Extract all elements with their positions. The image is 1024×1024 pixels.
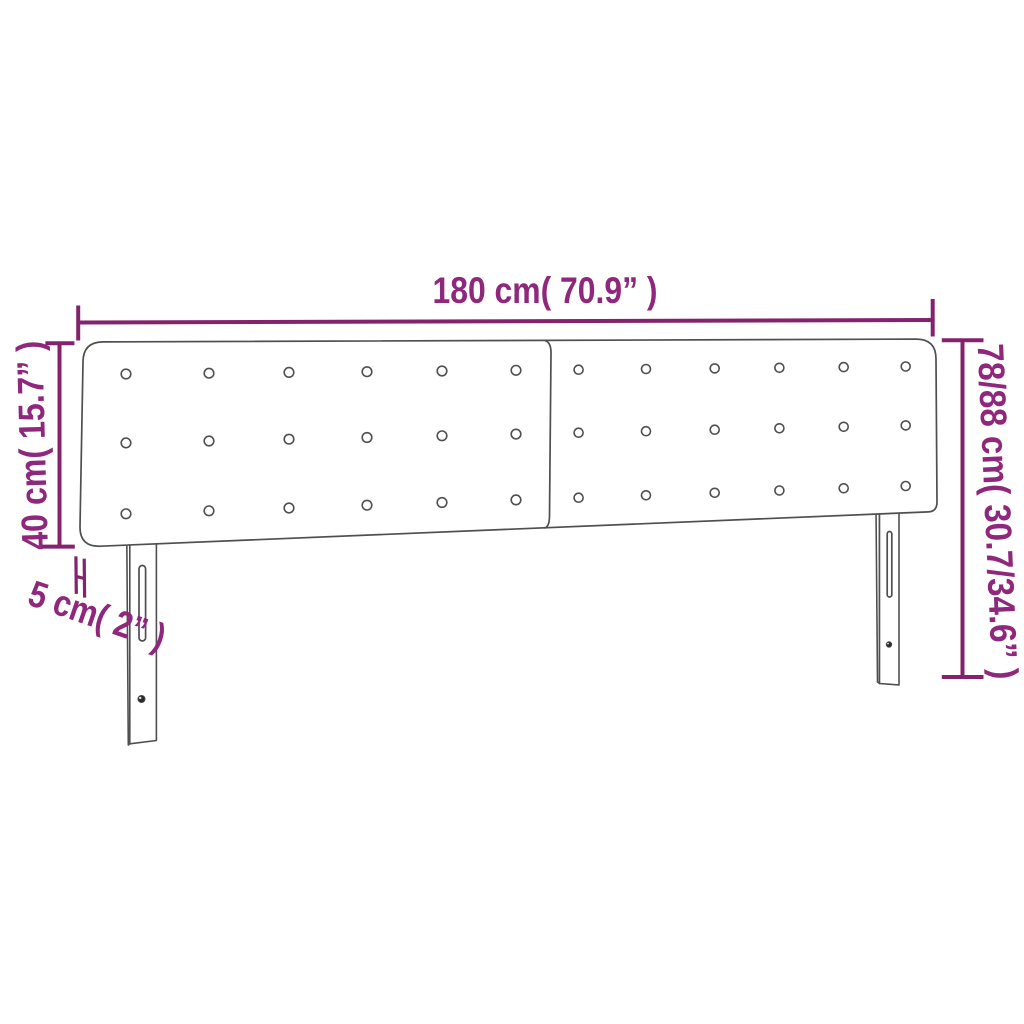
svg-text:40 cm( 15.7” ): 40 cm( 15.7” )	[9, 340, 56, 550]
svg-text:180 cm( 70.9” ): 180 cm( 70.9” )	[433, 270, 658, 311]
